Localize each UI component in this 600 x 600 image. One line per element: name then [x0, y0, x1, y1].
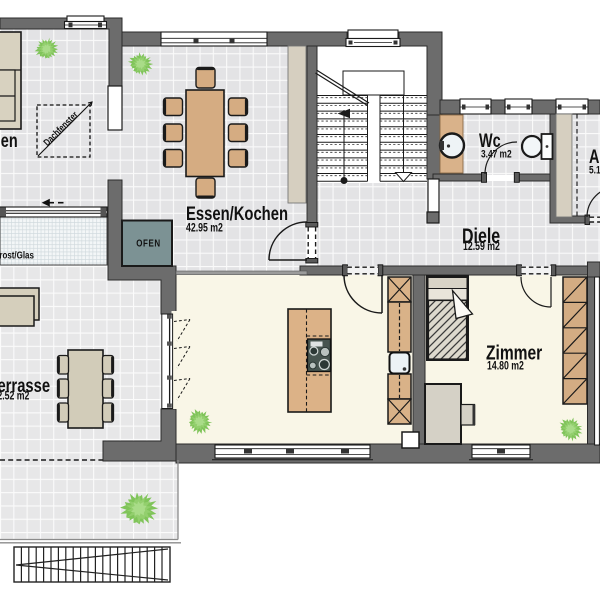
svg-text:42.95 m2: 42.95 m2 — [186, 222, 223, 234]
svg-text:12.59 m2: 12.59 m2 — [463, 241, 500, 253]
svg-text:5.15 m2: 5.15 m2 — [589, 164, 600, 176]
svg-text:12.52 m2: 12.52 m2 — [0, 390, 30, 402]
svg-text:Essen/Kochen: Essen/Kochen — [186, 202, 288, 225]
svg-text:14.80 m2: 14.80 m2 — [487, 360, 524, 372]
svg-text:OFEN: OFEN — [136, 237, 161, 248]
svg-text:Wohnen: Wohnen — [0, 130, 18, 151]
svg-text:3.47 m2: 3.47 m2 — [481, 148, 512, 160]
svg-text:Frost/Glas: Frost/Glas — [0, 249, 34, 260]
